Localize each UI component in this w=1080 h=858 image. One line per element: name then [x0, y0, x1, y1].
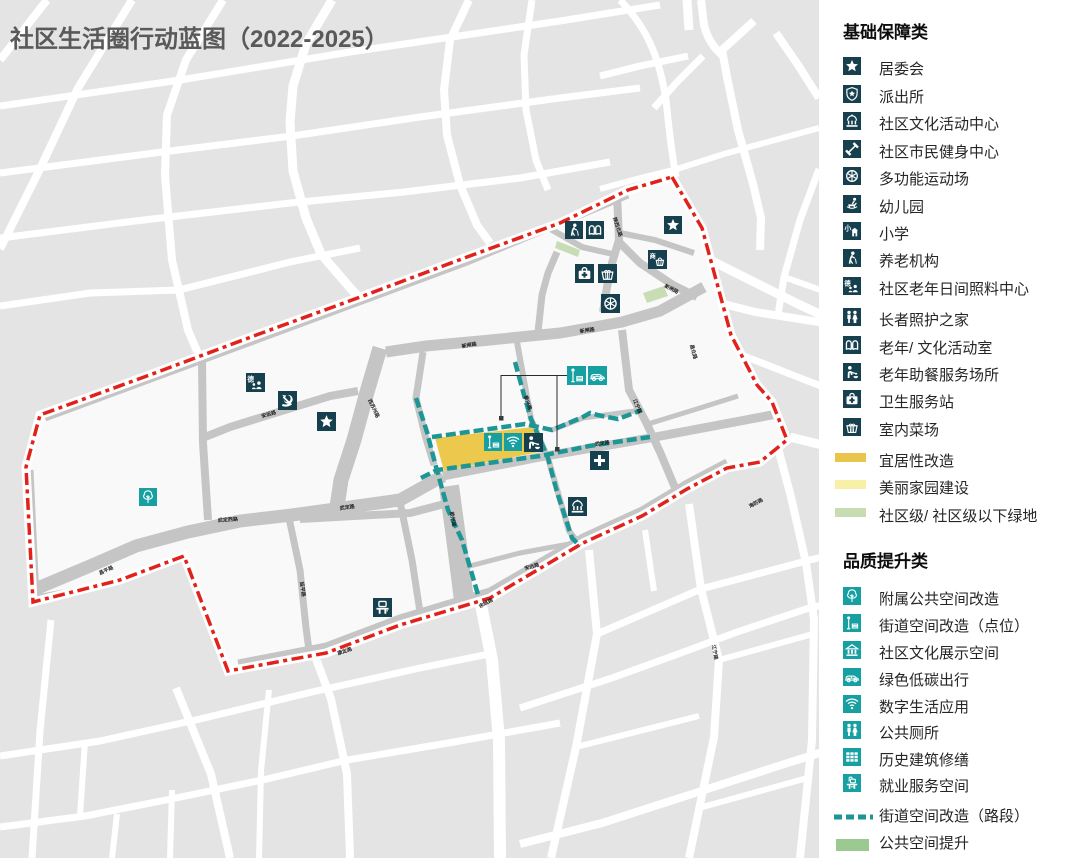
svg-text:武定西路: 武定西路 [218, 516, 239, 524]
